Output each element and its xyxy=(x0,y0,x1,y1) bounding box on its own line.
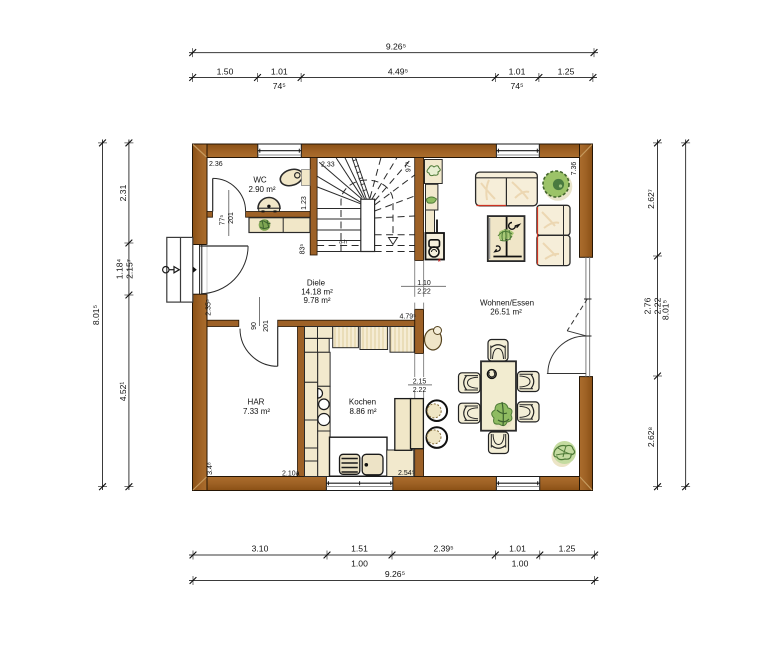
svg-text:2.35⁵: 2.35⁵ xyxy=(206,299,213,316)
svg-text:4.79⁵: 4.79⁵ xyxy=(400,314,417,321)
svg-text:2.36: 2.36 xyxy=(209,161,223,168)
svg-text:1.25: 1.25 xyxy=(558,67,575,77)
svg-text:2.39⁵: 2.39⁵ xyxy=(433,544,454,554)
svg-text:201: 201 xyxy=(263,320,270,332)
svg-text:8.01⁵: 8.01⁵ xyxy=(91,304,101,325)
svg-text:7.33 m²: 7.33 m² xyxy=(243,407,270,416)
svg-text:74⁵: 74⁵ xyxy=(273,81,287,91)
svg-text:9.26⁵: 9.26⁵ xyxy=(386,42,407,52)
svg-text:26.51 m²: 26.51 m² xyxy=(490,308,522,317)
svg-text:1.00: 1.00 xyxy=(351,559,368,569)
svg-text:1.25: 1.25 xyxy=(559,544,576,554)
svg-text:2.15: 2.15 xyxy=(413,379,427,386)
svg-text:2.15⁷: 2.15⁷ xyxy=(125,259,135,279)
svg-text:1.50: 1.50 xyxy=(217,67,234,77)
svg-text:2.22: 2.22 xyxy=(413,387,427,394)
svg-text:2.22: 2.22 xyxy=(417,289,431,296)
svg-text:*: * xyxy=(438,257,442,267)
svg-text:2.62⁷: 2.62⁷ xyxy=(646,189,656,209)
svg-text:90: 90 xyxy=(251,322,258,330)
svg-text:9.26⁵: 9.26⁵ xyxy=(385,569,406,579)
svg-text:Wohnen/Essen: Wohnen/Essen xyxy=(480,299,534,308)
svg-text:2.33: 2.33 xyxy=(321,162,335,169)
svg-text:2.76: 2.76 xyxy=(643,297,653,314)
svg-text:8.86 m²: 8.86 m² xyxy=(349,407,376,416)
svg-text:1.01: 1.01 xyxy=(509,67,526,77)
svg-text:8.01⁵: 8.01⁵ xyxy=(661,299,671,320)
svg-text:201: 201 xyxy=(228,212,235,224)
svg-text:77⁵: 77⁵ xyxy=(220,215,227,226)
svg-text:2.54⁵: 2.54⁵ xyxy=(398,470,415,477)
svg-text:HAR: HAR xyxy=(248,398,265,407)
svg-text:1.01: 1.01 xyxy=(271,67,288,77)
svg-text:Kochen: Kochen xyxy=(349,398,376,407)
svg-text:2.62⁸: 2.62⁸ xyxy=(646,426,656,447)
svg-text:7.36: 7.36 xyxy=(571,162,578,176)
svg-text:WC: WC xyxy=(253,176,267,185)
svg-text:1.00: 1.00 xyxy=(512,559,529,569)
svg-text:1.18⁴: 1.18⁴ xyxy=(115,258,125,279)
svg-text:74⁵: 74⁵ xyxy=(510,81,524,91)
svg-text:3.10: 3.10 xyxy=(252,544,269,554)
svg-text:1.01: 1.01 xyxy=(509,544,526,554)
svg-text:1.51: 1.51 xyxy=(351,544,368,554)
svg-text:Diele: Diele xyxy=(307,279,326,288)
svg-text:3.4⁸: 3.4⁸ xyxy=(207,462,214,475)
svg-text:83⁵: 83⁵ xyxy=(300,244,307,255)
svg-text:2.31: 2.31 xyxy=(118,184,128,201)
svg-text:4.49⁵: 4.49⁵ xyxy=(388,67,409,77)
svg-text:4.52¹: 4.52¹ xyxy=(118,382,128,402)
svg-text:1.10: 1.10 xyxy=(417,280,431,287)
svg-text:97³: 97³ xyxy=(406,161,413,172)
svg-text:a-h: a-h xyxy=(339,240,347,246)
svg-text:1.23: 1.23 xyxy=(301,196,308,210)
svg-text:2.10a: 2.10a xyxy=(282,471,300,478)
svg-text:2.90 m²: 2.90 m² xyxy=(248,185,275,194)
svg-text:9.78 m²: 9.78 m² xyxy=(303,296,330,305)
